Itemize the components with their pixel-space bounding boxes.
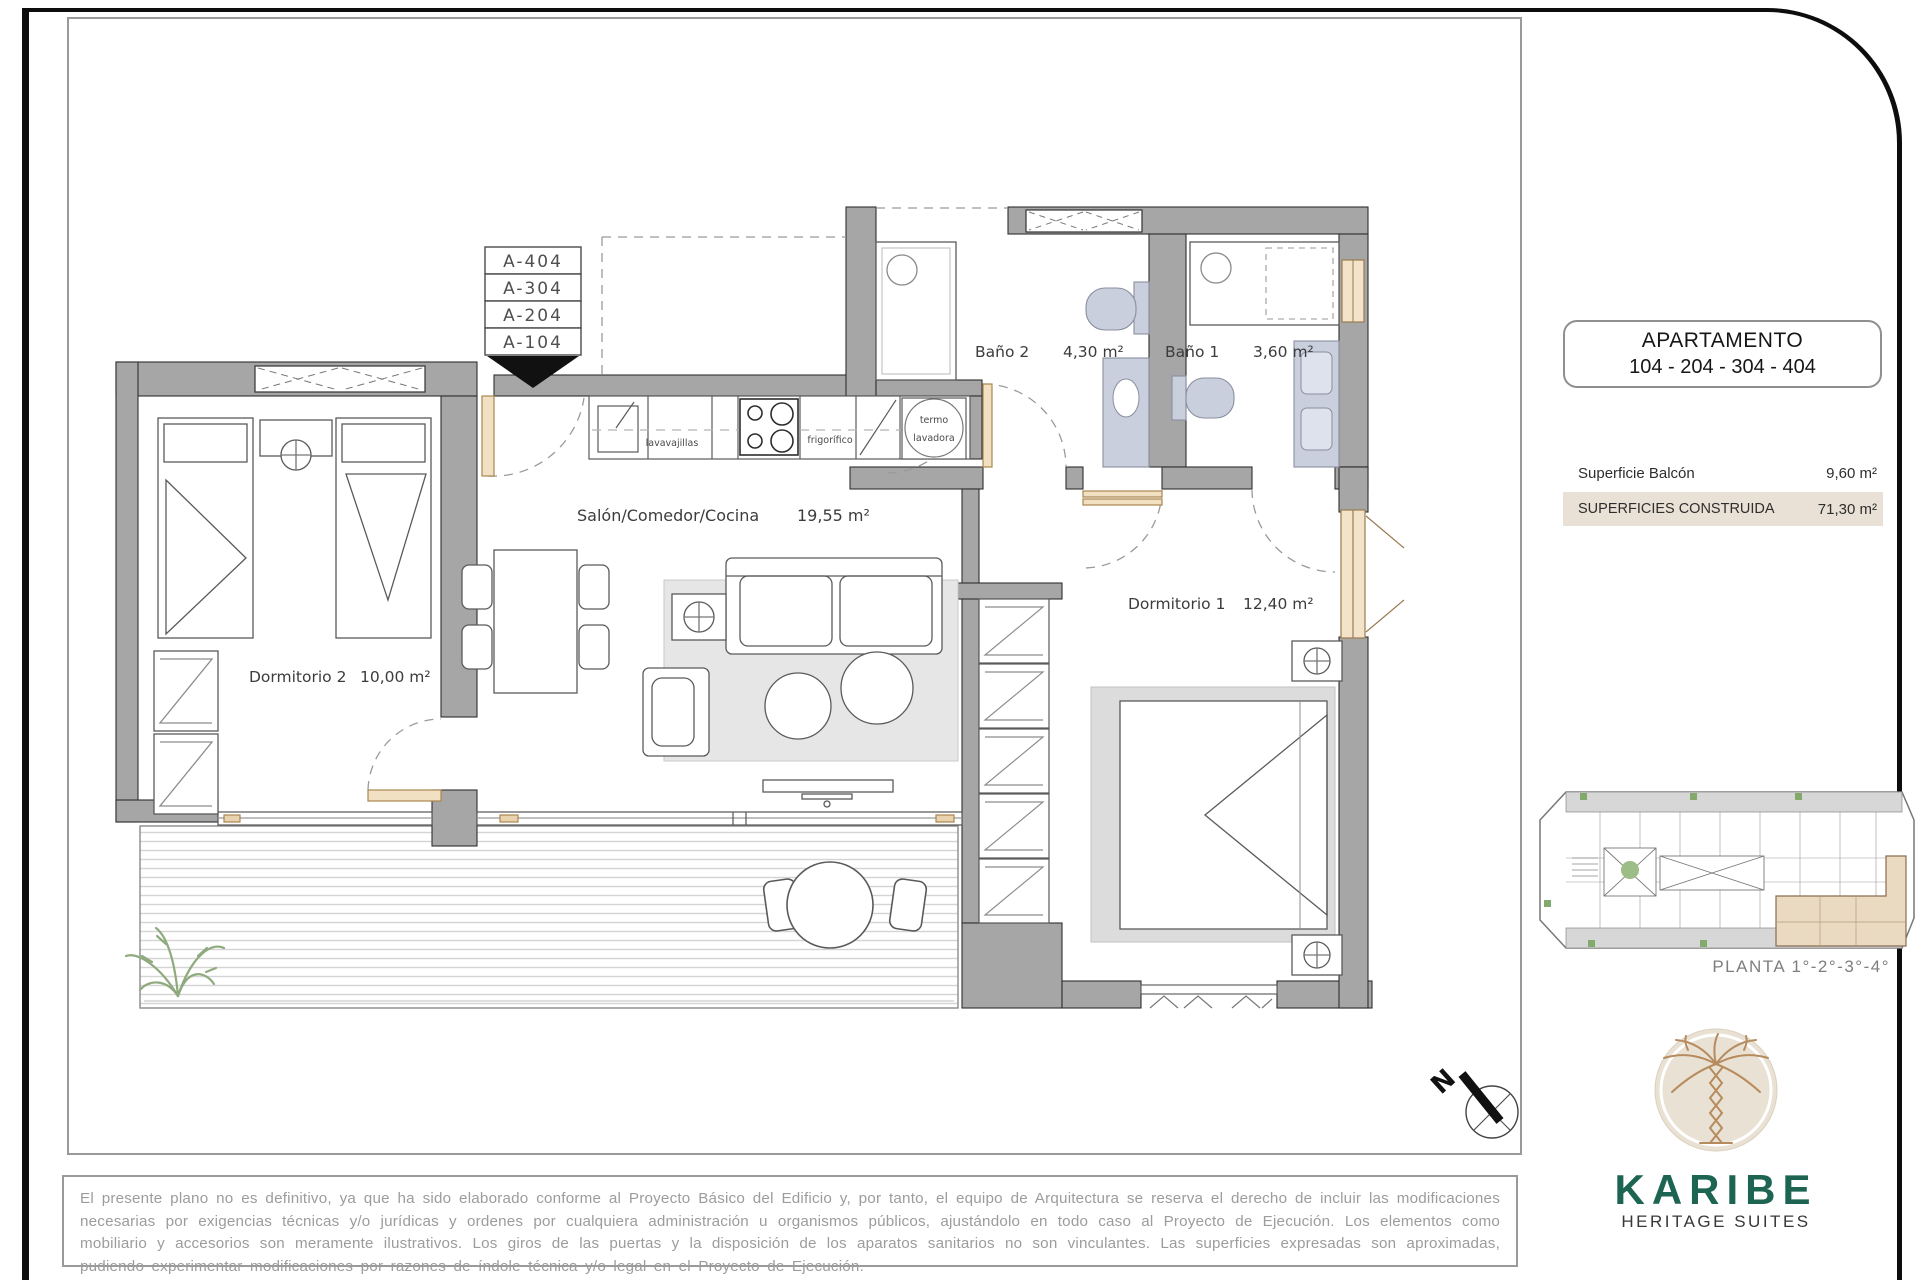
surface-row-built: SUPERFICIES CONSTRUIDA 71,30 m² bbox=[1563, 492, 1883, 526]
bano2-label: Baño 2 bbox=[975, 343, 1029, 361]
salon-area: 19,55 m² bbox=[797, 506, 870, 525]
boiler-label: termo bbox=[920, 415, 949, 426]
apartment-title: APARTAMENTO bbox=[1642, 329, 1803, 353]
dormitorio1-label: Dormitorio 1 bbox=[1128, 595, 1225, 613]
dormitorio2-area: 10,00 m² bbox=[360, 668, 431, 686]
brand-logo-palm-icon bbox=[1655, 1029, 1777, 1151]
hall-wardrobe bbox=[979, 599, 1049, 923]
window-dorm1-bottom bbox=[1141, 985, 1277, 1008]
surface-row-balcony: Superficie Balcón 9,60 m² bbox=[1563, 458, 1883, 488]
dormitorio1-area: 12,40 m² bbox=[1243, 595, 1314, 613]
bano1-label: Baño 1 bbox=[1165, 343, 1219, 361]
window-bath bbox=[1026, 210, 1142, 232]
north-arrow-icon: N bbox=[1426, 1064, 1518, 1138]
fridge-label: frigorífico bbox=[807, 435, 852, 446]
unit-label-304: A-304 bbox=[503, 279, 563, 299]
surface-balcony-label: Superficie Balcón bbox=[1578, 465, 1695, 482]
washer-label: lavadora bbox=[913, 433, 954, 444]
stove-hob bbox=[740, 399, 798, 455]
salon-furniture bbox=[462, 550, 958, 807]
terrace bbox=[126, 826, 958, 1008]
surface-built-label: SUPERFICIES CONSTRUIDA bbox=[1578, 501, 1775, 517]
surface-balcony-value: 9,60 m² bbox=[1826, 465, 1877, 482]
surface-built-value: 71,30 m² bbox=[1818, 501, 1877, 518]
unit-label-104: A-104 bbox=[503, 333, 563, 353]
unit-label-204: A-204 bbox=[503, 306, 563, 326]
window-dorm1-right bbox=[1341, 510, 1404, 638]
keyplan-caption: PLANTA 1°-2°-3°-4° bbox=[1640, 957, 1890, 977]
dormitorio2-label: Dormitorio 2 bbox=[249, 668, 346, 686]
boiler-washer: termo lavadora bbox=[902, 398, 966, 459]
salon-label: Salón/Comedor/Cocina bbox=[577, 506, 759, 525]
building-key-plan bbox=[1540, 792, 1914, 948]
bano2-area: 4,30 m² bbox=[1063, 343, 1124, 361]
terrace-sliding-doors bbox=[218, 812, 962, 825]
disclaimer-text: El presente plano no es definitivo, ya q… bbox=[62, 1175, 1518, 1267]
dormitorio2-furniture bbox=[154, 418, 431, 814]
dishwasher-label: lavavajillas bbox=[646, 438, 699, 449]
dormitorio1-furniture bbox=[1091, 641, 1342, 975]
floor-plan-sheet: A-404 A-304 A-204 A-104 termo lavado bbox=[0, 0, 1920, 1280]
brand-name: KARIBE bbox=[1563, 1166, 1869, 1214]
unit-number-stack: A-404 A-304 A-204 A-104 bbox=[485, 247, 581, 388]
apartment-title-box: APARTAMENTO 104 - 204 - 304 - 404 bbox=[1563, 320, 1882, 388]
unit-label-404: A-404 bbox=[503, 252, 563, 272]
bano1-area: 3,60 m² bbox=[1253, 343, 1314, 361]
brand-tagline: HERITAGE SUITES bbox=[1563, 1212, 1869, 1232]
window-bano1-right bbox=[1342, 260, 1364, 322]
north-letter: N bbox=[1426, 1064, 1462, 1101]
apartment-units: 104 - 204 - 304 - 404 bbox=[1629, 356, 1816, 379]
window-dorm2 bbox=[255, 366, 425, 392]
apartment-floor-plan: A-404 A-304 A-204 A-104 termo lavado bbox=[0, 0, 1920, 1280]
